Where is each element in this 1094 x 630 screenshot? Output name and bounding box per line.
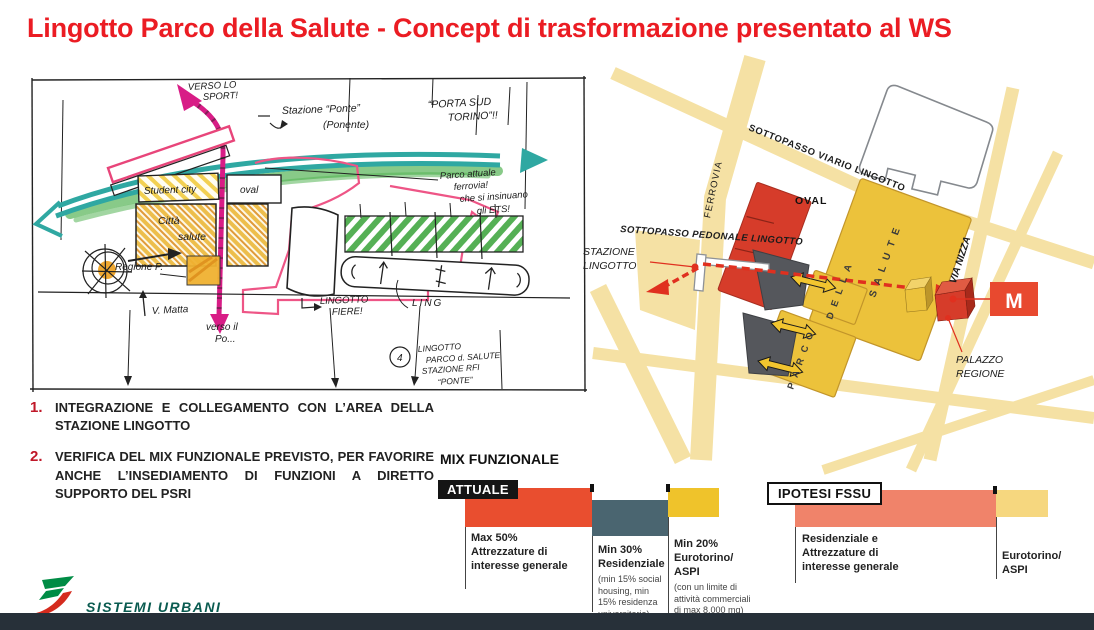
note-number: 1. — [30, 399, 55, 435]
bar-eurotorino — [996, 490, 1048, 517]
bar-label-eurotorino: Eurotorino/ ASPI — [1002, 550, 1061, 578]
svg-text:REGIONE: REGIONE — [956, 368, 1005, 380]
tick-mark — [993, 486, 997, 494]
bar-label-attrezzature: Max 50% Attrezzature di interesse genera… — [471, 532, 568, 573]
tick-mark — [590, 484, 594, 492]
svg-text:(Ponente): (Ponente) — [323, 119, 369, 131]
map-label-oval: OVAL — [795, 195, 827, 207]
svg-text:FIERE!: FIERE! — [332, 306, 363, 318]
fiere-building-sketch — [287, 207, 338, 296]
bar-label-residenziale: Min 30% Residenziale — [598, 544, 665, 572]
svg-text:salute: salute — [178, 231, 206, 243]
slide: Lingotto Parco della Salute - Concept di… — [0, 0, 1094, 630]
label-citta-salute: Città — [158, 215, 180, 227]
tag-ipotesi-fssu: IPOTESI FSSU — [767, 482, 882, 505]
svg-text:“PONTE”: “PONTE” — [437, 375, 474, 387]
svg-text:M: M — [1005, 290, 1023, 313]
note-text: INTEGRAZIONE E COLLEGAMENTO CON L’AREA D… — [55, 399, 434, 435]
notes-list: 1. INTEGRAZIONE E COLLEGAMENTO CON L’ARE… — [30, 399, 434, 516]
page-title: Lingotto Parco della Salute - Concept di… — [27, 13, 1077, 44]
citta-salute-block-east — [227, 204, 268, 266]
svg-text:gli ETS!: gli ETS! — [476, 204, 510, 217]
label-verso-po: verso il — [206, 322, 238, 333]
lingotto-building-sketch — [340, 256, 529, 296]
svg-text:Po...: Po... — [215, 334, 236, 345]
leader-line — [795, 527, 796, 583]
label-v-matta: V. Matta — [152, 304, 189, 317]
tag-attuale: ATTUALE — [438, 480, 518, 499]
brand-lockup: SISTEMI URBANI — [30, 576, 221, 618]
tick-mark — [666, 484, 670, 492]
bar-label-eurotorino: Min 20% Eurotorino/ ASPI — [674, 538, 733, 579]
concept-sketch: VERSO LO SPORT! Stazione “Ponte” (Ponent… — [30, 76, 587, 393]
svg-text:LINGOTTO: LINGOTTO — [583, 260, 636, 272]
label-porta-sud: “PORTA SUD — [428, 96, 492, 111]
label-student-city: Student city — [144, 184, 198, 197]
bar-residenziale — [592, 500, 668, 536]
svg-text:TORINO”!!: TORINO”!! — [448, 109, 499, 124]
leader-line — [592, 536, 593, 612]
concept-map: OVAL — [580, 58, 1094, 470]
chart-attuale: ATTUALE Max 50% Attrezzature di interess… — [438, 476, 770, 626]
regione-piemonte-block — [187, 256, 220, 285]
label-ling: LING — [412, 298, 443, 309]
bar-label-residenziale-attrezzature: Residenziale e Attrezzature di interesse… — [802, 533, 899, 574]
svg-text:SPORT!: SPORT! — [203, 90, 239, 103]
svg-text:ferrovia!: ferrovia! — [453, 180, 488, 193]
note-item-1: 1. INTEGRAZIONE E COLLEGAMENTO CON L’ARE… — [30, 399, 434, 435]
map-label-stazione: STAZIONE — [583, 246, 636, 258]
note-item-2: 2. VERIFICA DEL MIX FUNZIONALE PREVISTO,… — [30, 448, 434, 503]
bar-eurotorino — [668, 488, 719, 517]
label-oval-sketch: oval — [240, 185, 259, 196]
fs-logo-icon — [30, 576, 76, 618]
note-text: VERIFICA DEL MIX FUNZIONALE PREVISTO, PE… — [55, 448, 434, 503]
footer-bar — [0, 613, 1094, 630]
mix-funzionale-heading: MIX FUNZIONALE — [440, 451, 559, 467]
bar-sublabel-eurotorino: (con un limite di attività commerciali d… — [674, 582, 751, 617]
leader-line — [465, 527, 466, 589]
chart-ipotesi-fssu: IPOTESI FSSU Residenziale e Attrezzature… — [765, 476, 1075, 626]
note-number: 2. — [30, 448, 55, 503]
leader-line — [996, 517, 997, 579]
note-number: 4 — [397, 353, 403, 364]
label-regione: Regione P. — [115, 262, 163, 273]
leader-line — [668, 517, 669, 613]
map-label-palazzo-regione: PALAZZO — [956, 354, 1003, 366]
